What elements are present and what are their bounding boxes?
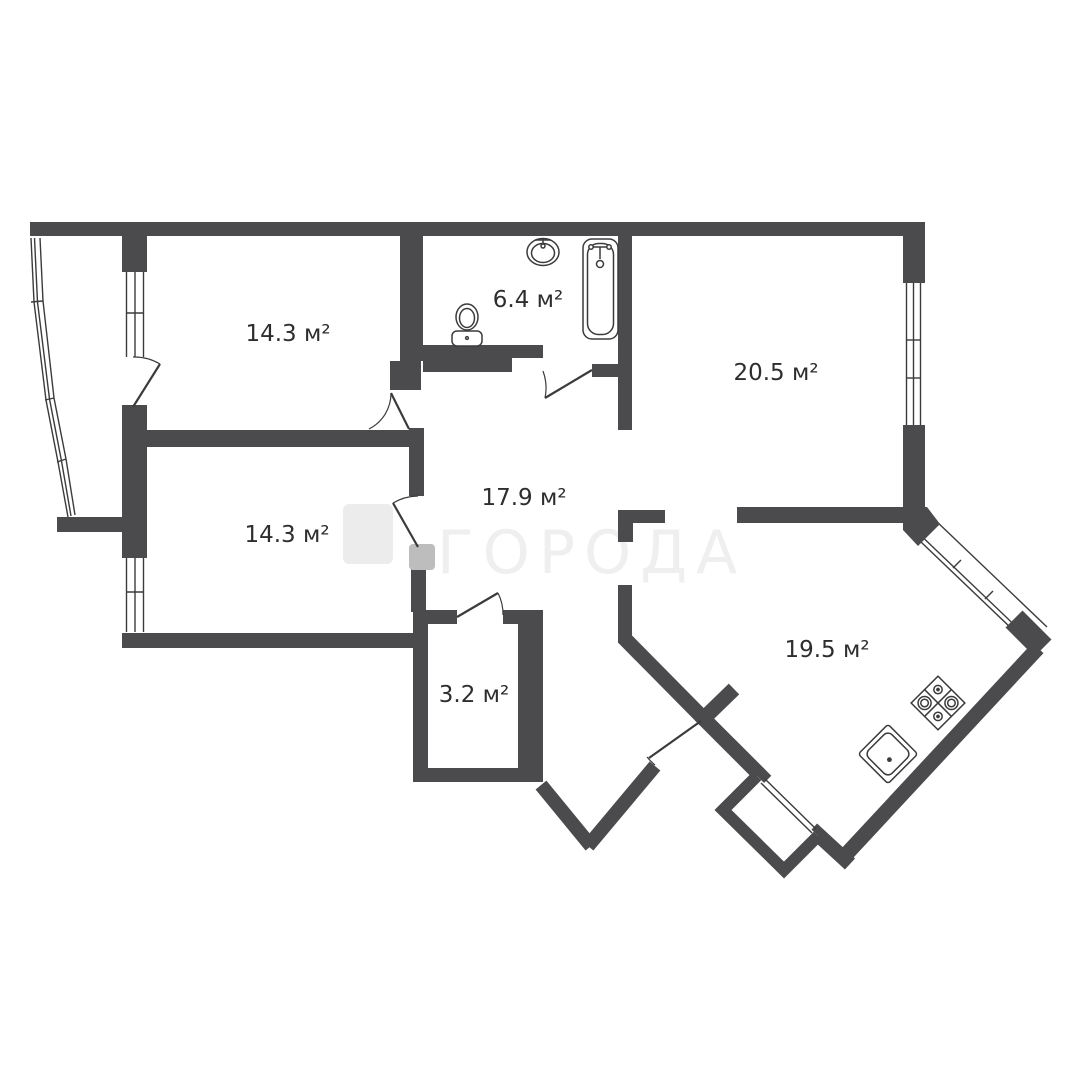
wall-right-upper bbox=[903, 236, 925, 283]
wall-left-low bbox=[122, 518, 147, 558]
wall-kitchen-top bbox=[737, 507, 905, 523]
wall-bathroom-door-stub bbox=[592, 364, 620, 377]
wall-storage-right bbox=[518, 610, 543, 782]
floor-plan: ГОРОДА bbox=[0, 0, 1080, 1080]
wall-bottom-left-room bbox=[122, 633, 420, 648]
wall-l-piece-leg bbox=[618, 510, 633, 542]
label-storage: 3.2 м² bbox=[439, 682, 509, 708]
label-kitchen-living: 19.5 м² bbox=[784, 637, 869, 663]
bathtub-icon bbox=[583, 239, 618, 339]
label-bedroom-top-left: 14.3 м² bbox=[245, 321, 330, 347]
wall-storage-bottom bbox=[413, 768, 518, 782]
wall-bedroom1-right bbox=[400, 236, 423, 361]
watermark-label: ГОРОДА bbox=[437, 518, 746, 588]
wall-bathroom-bottom-1 bbox=[423, 345, 543, 358]
watermark-logo-square-small bbox=[409, 544, 435, 570]
floor-plan-page: ГОРОДА bbox=[0, 0, 1080, 1080]
watermark-logo-square bbox=[343, 504, 393, 564]
wall-hall-left-a bbox=[409, 428, 424, 496]
wall-bathroom-bottom-2 bbox=[423, 358, 512, 372]
wall-top bbox=[30, 222, 925, 236]
wall-jog-block bbox=[390, 361, 421, 390]
wall-left-stub-top bbox=[122, 236, 147, 272]
label-bathroom: 6.4 м² bbox=[493, 287, 563, 313]
label-room-top-right: 20.5 м² bbox=[733, 360, 818, 386]
wall-storage-left bbox=[413, 610, 428, 782]
wall-right-lower bbox=[903, 425, 925, 516]
wall-divider-bedrooms bbox=[147, 430, 420, 447]
wall-balcony-bottom bbox=[57, 517, 123, 532]
label-hallway: 17.9 м² bbox=[481, 485, 566, 511]
wall-hall-right-top bbox=[618, 236, 632, 430]
label-bedroom-bottom-left: 14.3 м² bbox=[244, 522, 329, 548]
wall-left-mid bbox=[122, 405, 147, 522]
bathroom-sink-icon bbox=[527, 238, 559, 266]
